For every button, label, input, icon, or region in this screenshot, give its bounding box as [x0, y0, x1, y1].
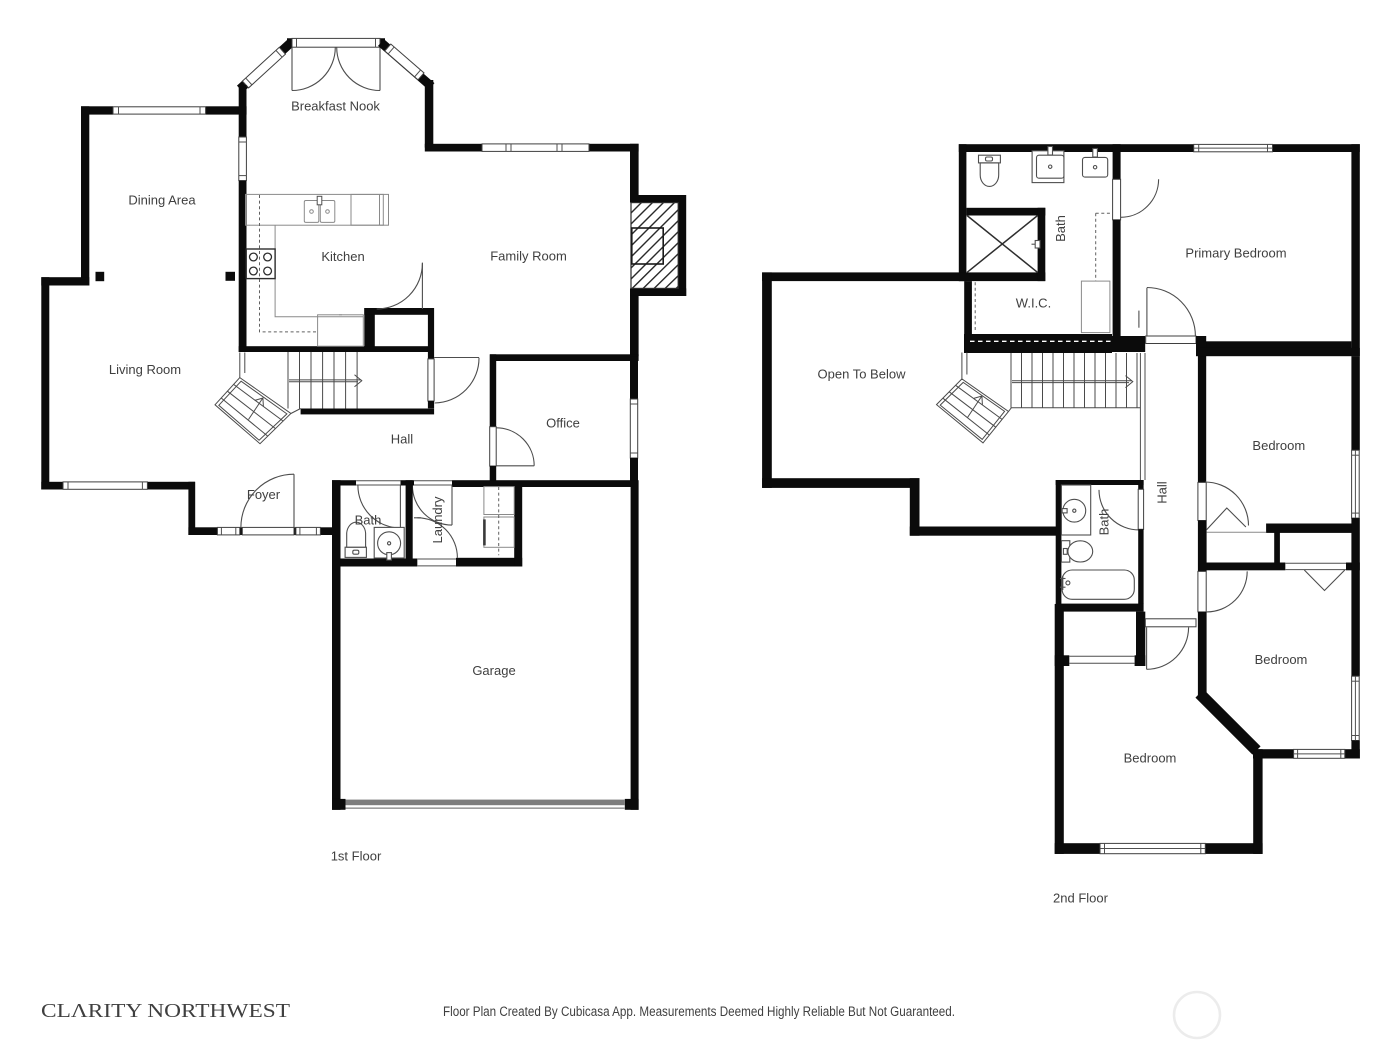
svg-text:1st Floor: 1st Floor [331, 849, 382, 864]
svg-text:Kitchen: Kitchen [321, 249, 364, 264]
svg-text:Breakfast Nook: Breakfast Nook [291, 99, 380, 114]
svg-text:Foyer: Foyer [247, 487, 281, 502]
svg-text:Hall: Hall [1155, 481, 1170, 504]
svg-text:Primary Bedroom: Primary Bedroom [1185, 245, 1286, 260]
svg-text:W.I.C.: W.I.C. [1016, 296, 1051, 311]
svg-text:Bath: Bath [355, 513, 382, 528]
svg-text:Bedroom: Bedroom [1255, 652, 1308, 667]
svg-text:Bedroom: Bedroom [1124, 751, 1177, 766]
svg-text:Hall: Hall [391, 432, 414, 447]
svg-text:Bedroom: Bedroom [1252, 438, 1305, 453]
svg-text:Floor Plan Created By Cubicasa: Floor Plan Created By Cubicasa App. Meas… [443, 1004, 955, 1020]
svg-text:Laundry: Laundry [430, 496, 445, 543]
svg-text:Office: Office [546, 415, 580, 430]
svg-text:Dining Area: Dining Area [128, 192, 196, 207]
svg-text:Bath: Bath [1097, 509, 1112, 536]
svg-text:Open To Below: Open To Below [818, 366, 907, 381]
svg-text:Garage: Garage [472, 663, 515, 678]
svg-text:2nd Floor: 2nd Floor [1053, 891, 1109, 906]
svg-text:CLΛRITY NORTHWEST: CLΛRITY NORTHWEST [41, 1001, 290, 1022]
svg-text:Living Room: Living Room [109, 362, 181, 377]
svg-text:Family Room: Family Room [490, 248, 567, 263]
svg-text:Bath: Bath [1053, 215, 1068, 242]
